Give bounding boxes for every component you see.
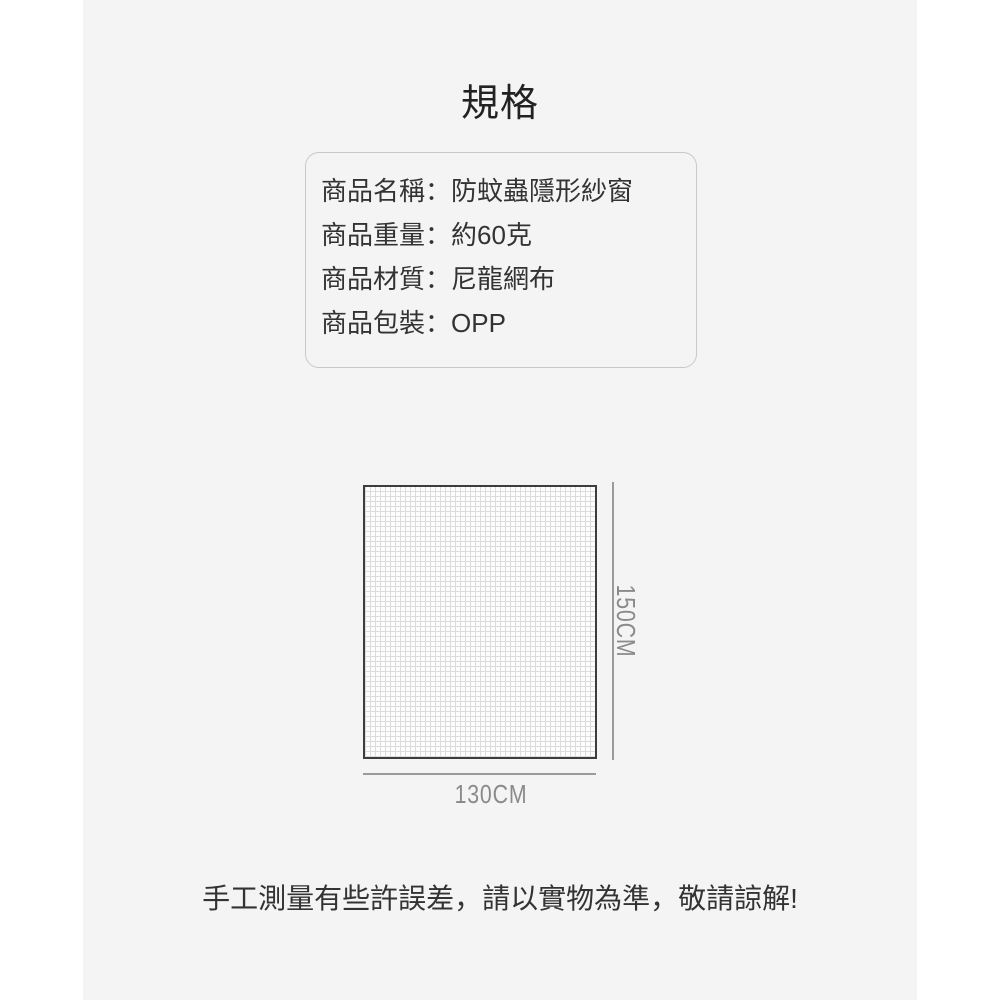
spec-colon: ： [425, 220, 451, 250]
spec-label: 商品材質 [321, 264, 425, 294]
spec-label: 商品包裝 [321, 308, 425, 338]
spec-box: 商品名稱：防蚊蟲隱形紗窗 商品重量：約60克 商品材質：尼龍網布 商品包裝：OP… [305, 152, 697, 368]
page-title: 規格 [83, 84, 917, 124]
spec-row-material: 商品材質：尼龍網布 [321, 257, 682, 301]
spec-value: 防蚊蟲隱形紗窗 [451, 176, 633, 206]
spec-colon: ： [425, 264, 451, 294]
spec-value: OPP [451, 308, 506, 338]
spec-row-name: 商品名稱：防蚊蟲隱形紗窗 [321, 169, 682, 213]
spec-row-weight: 商品重量：約60克 [321, 213, 682, 257]
spec-colon: ： [425, 176, 451, 206]
measurement-disclaimer: 手工測量有些許誤差，請以實物為準，敬請諒解! [83, 884, 917, 914]
spec-colon: ： [425, 308, 451, 338]
spec-label: 商品重量 [321, 220, 425, 250]
spec-row-packaging: 商品包裝：OPP [321, 301, 682, 345]
width-dimension-label: 130CM [455, 781, 528, 807]
page-canvas: 規格 商品名稱：防蚊蟲隱形紗窗 商品重量：約60克 商品材質：尼龍網布 商品包裝… [0, 0, 1000, 1000]
spec-value: 尼龍網布 [451, 264, 555, 294]
mesh-product-image [363, 485, 597, 759]
spec-label: 商品名稱 [321, 176, 425, 206]
spec-value: 約60克 [451, 220, 532, 250]
width-dimension-line [363, 773, 596, 775]
height-dimension-label: 150CM [613, 585, 639, 658]
